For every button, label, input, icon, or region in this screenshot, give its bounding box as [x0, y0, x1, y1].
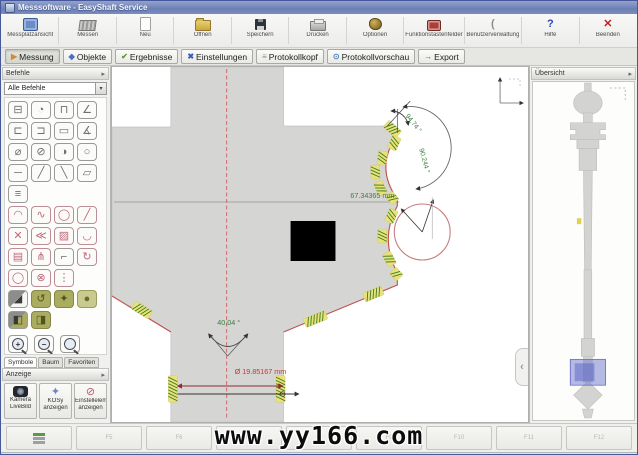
tab-messung-icon: ▶: [11, 52, 17, 61]
tool-angle-3p[interactable]: ∡: [77, 122, 97, 140]
circle-slash-icon: ⊘: [36, 147, 45, 158]
blanked-region: [291, 221, 336, 261]
corner-icon: ⌐: [61, 252, 67, 263]
bottom-button-f10[interactable]: F10: [426, 426, 492, 450]
tool-outer-distance[interactable]: ⊏: [8, 122, 28, 140]
function-key-bar: F5F6F7F8F9F10F11F12: [1, 423, 637, 452]
tab-label: Protokollvorschau: [342, 52, 410, 62]
line-horizontal-icon: ─: [14, 168, 22, 179]
tab-label: Protokollkopf: [269, 52, 318, 62]
tool-spacer: [77, 185, 97, 203]
bottom-button-f11[interactable]: F11: [496, 426, 562, 450]
toolbar-button-drucken[interactable]: Drucken: [290, 15, 344, 46]
line-fan-icon: ≪: [35, 231, 47, 242]
rectangle-icon: ▭: [59, 126, 69, 137]
tool-rectangle[interactable]: ▭: [54, 122, 74, 140]
zoom-in-icon: +: [12, 338, 24, 350]
tab-einstellungen[interactable]: ✖Einstellungen: [181, 49, 253, 64]
table-icon: ▤: [13, 252, 23, 263]
tool-half-dark[interactable]: ◧: [8, 311, 28, 329]
line-diagonal-icon: ╱: [38, 168, 45, 179]
tool-angle[interactable]: ∠: [77, 101, 97, 119]
crossed-circle-icon: ⊗: [36, 273, 45, 284]
tab-objekte[interactable]: ◆Objekte: [63, 49, 112, 64]
tab-protokollkopf-icon: ≡: [262, 52, 267, 61]
bottom-button-layers[interactable]: [6, 426, 72, 450]
tool-intersection[interactable]: ✕: [8, 227, 28, 245]
caliper-icon: ⊟: [13, 105, 22, 116]
probe-marker: [577, 218, 581, 224]
tool-spacer: [54, 311, 74, 329]
shaft-preview[interactable]: [532, 81, 635, 421]
rotate-icon: ↻: [82, 252, 91, 263]
toolbar-button-optionen[interactable]: Optionen: [348, 15, 402, 46]
toolbar-separator: [173, 17, 174, 44]
sidebar-tab-symbole[interactable]: Symbole: [4, 357, 37, 368]
toolbar-separator: [346, 17, 347, 44]
printer-icon: [310, 21, 326, 31]
outer-distance-icon: ⊏: [13, 126, 22, 137]
folder-icon: [195, 20, 211, 31]
toolbar-button-benutzerverwaltung[interactable]: (Benutzerverwaltung: [466, 15, 520, 46]
circle-sector-icon: ◔: [38, 105, 45, 116]
circle-gauge-icon: ◑: [61, 147, 68, 158]
tab-ergebnisse-icon: ✔: [121, 52, 128, 61]
tool-circle[interactable]: ○: [77, 143, 97, 161]
tab-export-icon: →: [424, 52, 432, 61]
tool-circle-gauge[interactable]: ◑: [54, 143, 74, 161]
overview-panel-header: Übersicht ▸: [531, 67, 636, 80]
tab-label: Einstellungen: [196, 52, 247, 62]
width-icon: ⊓: [60, 105, 69, 116]
dimension-angle-chamfer-label: 94.74 °: [404, 112, 424, 134]
circle-construct-icon: ◯: [58, 210, 70, 221]
inner-distance-icon: ⊐: [36, 126, 45, 137]
fill-corner-icon: ◢: [14, 294, 22, 305]
tab-label: Messung: [19, 52, 54, 62]
toolbar-button-label: Neu: [140, 32, 151, 38]
toolbar-separator: [288, 17, 289, 44]
dimension-width-label: 67.34365 mm: [350, 191, 394, 200]
tool-line-horizontal[interactable]: ─: [8, 164, 28, 182]
shape-olive-icon: ✦: [59, 294, 68, 305]
tool-zoom-in[interactable]: +: [8, 335, 28, 353]
display-button-label: anzeigen: [43, 405, 67, 412]
tool-arc[interactable]: ◠: [8, 206, 28, 224]
ellipse-icon: ◯: [12, 273, 24, 284]
help-icon: ?: [547, 18, 554, 30]
kosy-anzeigen-button[interactable]: ✦KOSyanzeigen: [39, 383, 72, 419]
tool-spacer: [54, 185, 74, 203]
tab-protokollkopf[interactable]: ≡Protokollkopf: [256, 49, 324, 64]
tool-plane[interactable]: ▱: [77, 164, 97, 182]
commands-filter-select[interactable]: Alle Befehle ▾: [4, 82, 107, 95]
bottom-button-f9[interactable]: F9: [356, 426, 422, 450]
tool-half-olive[interactable]: ◨: [31, 311, 51, 329]
tab-messung[interactable]: ▶Messung: [5, 49, 60, 64]
pin-icon[interactable]: ▸: [101, 70, 105, 78]
circle-icon: ○: [84, 147, 91, 158]
toolbar-button-label: Messen: [77, 32, 98, 38]
tool-tree[interactable]: ⋔: [31, 248, 51, 266]
tool-inner-distance[interactable]: ⊐: [31, 122, 51, 140]
chevron-left-icon: ‹: [520, 361, 524, 373]
measurement-canvas[interactable]: 67.34365 mm 94.74 ° 90.244 ° 40.04 ° Ø 1…: [111, 66, 529, 423]
toolbar-separator: [403, 17, 404, 44]
commands-panel-header: Befehle ▸: [2, 67, 109, 80]
sidebar-tab-strip: SymboleBaumFavoriten: [2, 355, 109, 368]
stack-icon: [33, 433, 45, 444]
main-area: Befehle ▸ Alle Befehle ▾ ⊟◔⊓∠⊏⊐▭∡⌀⊘◑○─╱╲…: [1, 66, 637, 423]
blob-olive-icon: ●: [84, 294, 91, 305]
tab-objekte-icon: ◆: [69, 52, 75, 61]
floppy-icon: [255, 19, 266, 30]
tree-icon: ⋔: [36, 252, 45, 263]
dimension-angle-bottom-label: 40.04 °: [217, 318, 240, 327]
arc-icon: ◠: [13, 210, 23, 221]
tool-fill-corner[interactable]: ◢: [8, 290, 28, 308]
tab-protokollvorschau-icon: ⊙: [333, 52, 340, 61]
keypad-icon: [427, 20, 441, 31]
overview-header-label: Übersicht: [535, 70, 565, 77]
tab-label: Ergebnisse: [130, 52, 173, 62]
toolbar-button-label: Speichern: [247, 32, 274, 38]
plane-icon: ▱: [83, 168, 91, 179]
sidebar-tab-baum[interactable]: Baum: [38, 357, 63, 368]
tool-line-diagonal[interactable]: ╱: [31, 164, 51, 182]
exit-icon: ✕: [603, 18, 612, 30]
circle-diameter-icon: ⌀: [15, 147, 22, 158]
tool-spacer: [31, 185, 51, 203]
kos-icon: ✦: [51, 386, 60, 398]
tool-ellipse-scan[interactable]: ≡: [8, 185, 28, 203]
angle-3p-icon: ∡: [82, 126, 92, 137]
tool-point-list[interactable]: ⋮: [54, 269, 74, 287]
tool-width[interactable]: ⊓: [54, 101, 74, 119]
pin-icon[interactable]: ▸: [628, 70, 632, 78]
toolbar-button-label: Funktionstastenfelder: [405, 32, 462, 38]
toolbar-button-label: Hilfe: [544, 32, 556, 38]
bottom-button-f8[interactable]: F8: [286, 426, 352, 450]
point-list-icon: ⋮: [59, 273, 70, 284]
toolbar-button-label: Benutzerverwaltung: [466, 32, 519, 38]
tool-caliper[interactable]: ⊟: [8, 101, 28, 119]
title-bar[interactable]: Messsoftware - EasyShaft Service: [1, 1, 637, 14]
tab-bar: ▶Messung◆Objekte✔Ergebnisse✖Einstellunge…: [1, 48, 637, 66]
dimension-diameter-label: Ø 19.85167 mm: [235, 367, 286, 376]
tab-export[interactable]: →Export: [418, 49, 465, 64]
ein-icon: ⊘: [86, 386, 95, 398]
display-button-label: anzeigen: [78, 405, 102, 412]
curve-icon: ◡: [82, 231, 92, 242]
toolbar-separator: [579, 17, 580, 44]
shaft-drawing: [533, 82, 634, 420]
toolbar-button-funktionstastenfelder[interactable]: Funktionstastenfelder: [405, 15, 462, 46]
ellipse-scan-icon: ≡: [15, 189, 21, 200]
tool-spacer: [77, 269, 97, 287]
toolbar-separator: [116, 17, 117, 44]
toolbar-button-neu[interactable]: Neu: [118, 15, 172, 46]
commands-filter-value: Alle Befehle: [8, 85, 45, 92]
tab-label: Objekte: [77, 52, 106, 62]
tool-crossed-circle[interactable]: ⊗: [31, 269, 51, 287]
zoom-tool-row: +−: [8, 335, 103, 353]
panel-collapse-handle[interactable]: ‹: [515, 348, 528, 386]
toolbar: MessplatzansichtMessenNeuÖffnenSpeichern…: [1, 14, 637, 48]
toolbar-separator: [464, 17, 465, 44]
bottom-button-f12[interactable]: F12: [566, 426, 632, 450]
circle-probe-line-1: [401, 209, 422, 232]
user-icon: (: [491, 18, 495, 30]
kamera-livebild-button[interactable]: KameraLiveBild: [4, 383, 37, 419]
tool-table[interactable]: ▤: [8, 248, 28, 266]
tool-blob-olive[interactable]: ●: [77, 290, 97, 308]
toolbar-button-label: Optionen: [363, 32, 387, 38]
toolbar-button-label: Messplatzansicht: [7, 32, 53, 38]
ruler-icon: [78, 20, 97, 31]
refresh-olive-icon: ↺: [36, 294, 45, 305]
toolbar-button-label: Beenden: [596, 32, 620, 38]
display-button-row: KameraLiveBild✦KOSyanzeigen⊘Einstellelem…: [2, 381, 109, 421]
cam-icon: [13, 386, 28, 397]
hatch-icon: ▨: [59, 231, 69, 242]
tool-circle-sector[interactable]: ◔: [31, 101, 51, 119]
monitor-icon: [23, 18, 38, 31]
commands-panel-body: ⊟◔⊓∠⊏⊐▭∡⌀⊘◑○─╱╲▱≡◠∿◯╱✕≪▨◡▤⋔⌐↻◯⊗⋮◢↺✦●◧◨ +…: [4, 97, 107, 355]
zoom-out-icon: −: [38, 338, 50, 350]
commands-header-label: Befehle: [6, 70, 30, 77]
intersection-icon: ✕: [13, 231, 22, 242]
app-window: Messsoftware - EasyShaft Service Messpla…: [0, 0, 638, 455]
tool-circle-construct[interactable]: ◯: [54, 206, 74, 224]
tab-label: Export: [434, 52, 459, 62]
bottom-button-f6[interactable]: F6: [146, 426, 212, 450]
angle-extension-line-1: [387, 101, 410, 126]
display-header-label: Anzeige: [6, 371, 31, 378]
page-icon: [140, 17, 151, 31]
tool-shape-olive[interactable]: ✦: [54, 290, 74, 308]
zoom-region-icon: [64, 338, 76, 350]
tab-protokollvorschau[interactable]: ⊙Protokollvorschau: [327, 49, 415, 64]
bottom-button-f7[interactable]: F7: [216, 426, 282, 450]
line-2p-icon: ╲: [61, 168, 68, 179]
tool-hatch[interactable]: ▨: [54, 227, 74, 245]
toolbar-button-speichern[interactable]: Speichern: [233, 15, 287, 46]
tool-circle-diameter[interactable]: ⌀: [8, 143, 28, 161]
spline-icon: ∿: [36, 210, 45, 221]
sidebar: Befehle ▸ Alle Befehle ▾ ⊟◔⊓∠⊏⊐▭∡⌀⊘◑○─╱╲…: [1, 66, 111, 423]
overview-panel: Übersicht ▸: [529, 66, 637, 423]
toolbar-button-label: Öffnen: [194, 32, 212, 38]
tool-zoom-region[interactable]: [60, 335, 80, 353]
gear-icon: [369, 18, 382, 30]
tab-einstellungen-icon: ✖: [187, 52, 194, 61]
half-dark-icon: ◧: [13, 315, 23, 326]
chevron-down-icon[interactable]: ▾: [95, 83, 106, 94]
tool-line-2p[interactable]: ╲: [54, 164, 74, 182]
angle-icon: ∠: [82, 105, 92, 116]
tool-rotate[interactable]: ↻: [77, 248, 97, 266]
toolbar-button-label: Drucken: [306, 32, 328, 38]
toolbar-button-hilfe[interactable]: ?Hilfe: [523, 15, 577, 46]
window-title: Messsoftware - EasyShaft Service: [18, 3, 147, 12]
bottom-button-f5[interactable]: F5: [76, 426, 142, 450]
toolbar-separator: [58, 17, 59, 44]
toolbar-button-beenden[interactable]: ✕Beenden: [581, 15, 635, 46]
toolbar-button-messplatzansicht[interactable]: Messplatzansicht: [3, 15, 57, 46]
display-panel-header: Anzeige ▸: [2, 368, 109, 381]
tool-zoom-out[interactable]: −: [34, 335, 54, 353]
tool-spacer: [77, 311, 97, 329]
dimension-angle-arc-label: 90.244 °: [417, 147, 431, 174]
half-olive-icon: ◨: [36, 315, 46, 326]
toolbar-separator: [521, 17, 522, 44]
tool-corner[interactable]: ⌐: [54, 248, 74, 266]
app-icon: [5, 3, 15, 13]
toolbar-button-messen[interactable]: Messen: [60, 15, 114, 46]
einstellelemente-anzeigen-button[interactable]: ⊘Einstellelementeanzeigen: [74, 383, 107, 419]
tool-refresh-olive[interactable]: ↺: [31, 290, 51, 308]
sidebar-tab-favoriten[interactable]: Favoriten: [64, 357, 99, 368]
toolbar-button-oeffnen[interactable]: Öffnen: [175, 15, 229, 46]
axes-corner-icon: [610, 88, 625, 100]
tool-circle-slash[interactable]: ⊘: [31, 143, 51, 161]
tool-spline[interactable]: ∿: [31, 206, 51, 224]
pin-icon[interactable]: ▸: [101, 371, 105, 379]
tool-line-construct[interactable]: ╱: [77, 206, 97, 224]
canvas-drawing: 67.34365 mm 94.74 ° 90.244 ° 40.04 ° Ø 1…: [112, 67, 528, 422]
tool-curve[interactable]: ◡: [77, 227, 97, 245]
line-construct-icon: ╱: [84, 210, 91, 221]
coordinate-axes-icon: [500, 78, 523, 103]
tool-ellipse[interactable]: ◯: [8, 269, 28, 287]
tool-line-fan[interactable]: ≪: [31, 227, 51, 245]
toolbar-separator: [231, 17, 232, 44]
display-button-label: LiveBild: [10, 404, 31, 411]
viewport-indicator[interactable]: [570, 359, 605, 385]
tool-grid: ⊟◔⊓∠⊏⊐▭∡⌀⊘◑○─╱╲▱≡◠∿◯╱✕≪▨◡▤⋔⌐↻◯⊗⋮◢↺✦●◧◨: [8, 101, 103, 330]
tab-ergebnisse[interactable]: ✔Ergebnisse: [115, 49, 178, 64]
